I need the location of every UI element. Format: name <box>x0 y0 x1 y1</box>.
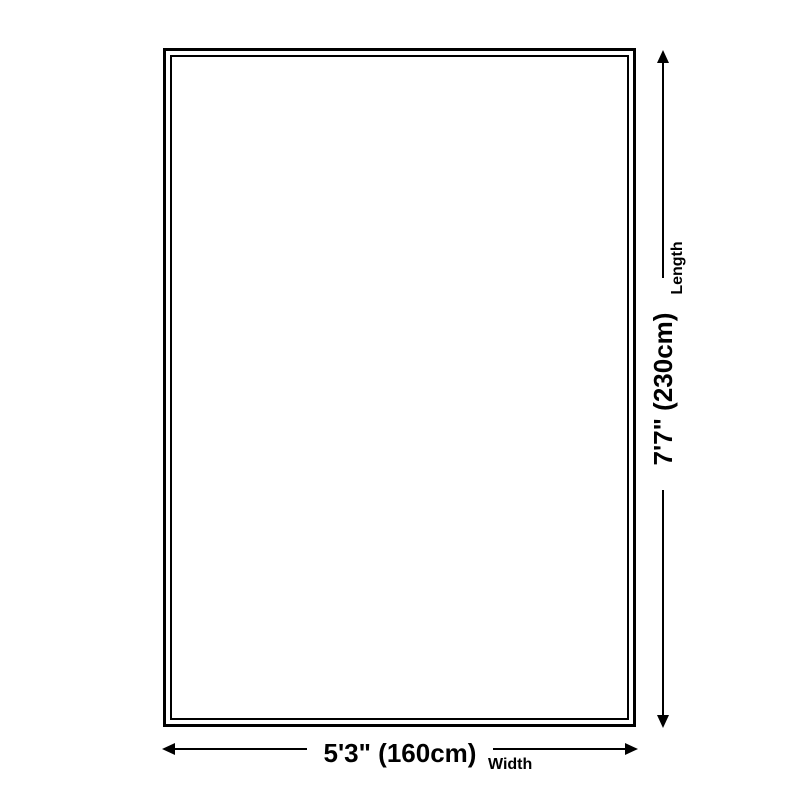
arrow-down-icon <box>657 715 669 728</box>
width-value-label: 5'3" (160cm) <box>307 740 493 766</box>
rug-inner-border <box>170 55 629 720</box>
rug-size-diagram: Length 7'7" (230cm) 5'3" (160cm) Width <box>0 0 800 800</box>
length-dimension-line-top <box>662 61 664 278</box>
length-axis-label: Length <box>670 241 686 294</box>
length-dimension-line-bottom <box>662 490 664 716</box>
arrow-right-icon <box>625 743 638 755</box>
width-dimension-line-right <box>493 748 625 750</box>
width-dimension-line-left <box>174 748 307 750</box>
rug-outline <box>163 48 636 727</box>
width-axis-label: Width <box>488 757 532 773</box>
length-value-label: 7'7" (230cm) <box>650 313 676 466</box>
